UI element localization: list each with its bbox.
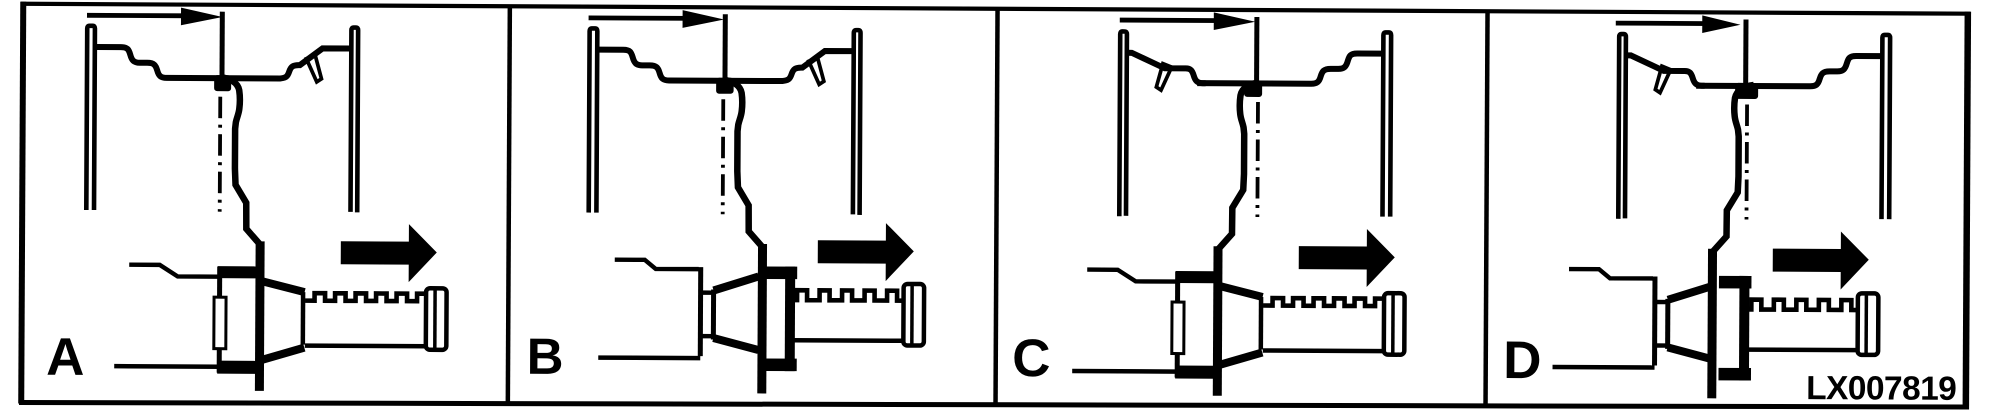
svg-text:LX007819: LX007819 [1806,370,1956,408]
svg-text:B: B [527,328,564,385]
svg-text:A: A [46,328,85,387]
svg-text:D: D [1503,331,1542,390]
svg-text:C: C [1012,329,1051,388]
